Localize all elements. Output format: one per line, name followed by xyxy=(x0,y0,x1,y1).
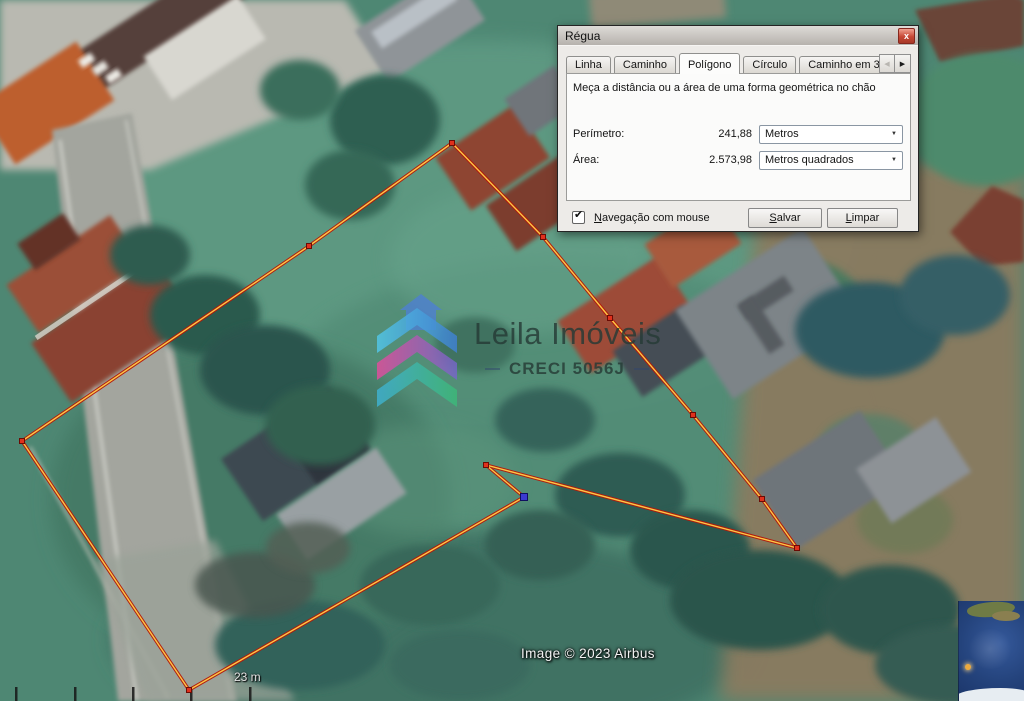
close-icon: x xyxy=(904,32,909,41)
area-unit-value: Metros quadrados xyxy=(765,154,854,166)
area-label: Área: xyxy=(573,154,599,166)
clear-button[interactable]: Limpar xyxy=(827,208,898,228)
close-button[interactable]: x xyxy=(898,28,915,44)
map-attribution: Image © 2023 Airbus xyxy=(521,646,655,661)
perimeter-value: 241,88 xyxy=(718,128,759,140)
tab-pane: Meça a distância ou a área de uma forma … xyxy=(566,73,911,201)
save-button[interactable]: Salvar xyxy=(748,208,822,228)
polygon-vertex[interactable] xyxy=(187,688,192,693)
tab-scroll-left-icon[interactable]: ◀ xyxy=(879,54,895,73)
mouse-nav-checkbox[interactable]: ✔ xyxy=(572,211,585,224)
overview-location-marker xyxy=(965,664,971,670)
dialog-titlebar[interactable]: Régua x xyxy=(558,26,918,45)
dialog-footer: ✔ Navegação com mouse Salvar Limpar xyxy=(566,208,911,230)
polygon-vertex[interactable] xyxy=(484,463,489,468)
scale-label: 23 m xyxy=(234,670,261,684)
area-value: 2.573,98 xyxy=(709,154,759,166)
tab-caminho[interactable]: Caminho xyxy=(614,56,676,73)
area-unit-select[interactable]: Metros quadrados ▼ xyxy=(759,151,903,170)
polygon-vertex[interactable] xyxy=(541,235,546,240)
tab-circulo[interactable]: Círculo xyxy=(743,56,796,73)
polygon-vertex[interactable] xyxy=(450,141,455,146)
overview-ice xyxy=(958,688,1024,701)
perimeter-unit-select[interactable]: Metros ▼ xyxy=(759,125,903,144)
polygon-vertex[interactable] xyxy=(20,439,25,444)
polygon-vertex[interactable] xyxy=(307,244,312,249)
polygon-vertex[interactable] xyxy=(760,497,765,502)
chevron-down-icon: ▼ xyxy=(891,157,897,163)
tab-linha[interactable]: Linha xyxy=(566,56,611,73)
polygon-vertex[interactable] xyxy=(795,546,800,551)
area-row: Área: 2.573,98 Metros quadrados ▼ xyxy=(573,150,903,170)
dialog-title: Régua xyxy=(565,29,600,43)
overview-clouds xyxy=(967,629,1013,669)
check-icon: ✔ xyxy=(574,210,583,221)
perimeter-unit-value: Metros xyxy=(765,128,799,140)
perimeter-label: Perímetro: xyxy=(573,128,624,140)
tab-scroll-right-icon[interactable]: ▶ xyxy=(895,54,911,73)
dialog-body: Linha Caminho Polígono Círculo Caminho e… xyxy=(558,45,918,231)
tab-poligono[interactable]: Polígono xyxy=(679,53,740,74)
tab-scroll-buttons: ◀ ▶ xyxy=(879,54,911,73)
chevron-down-icon: ▼ xyxy=(891,131,897,137)
overview-landmass xyxy=(992,611,1020,621)
ruler-dialog: Régua x Linha Caminho Polígono Círculo C… xyxy=(557,25,919,232)
tab-bar: Linha Caminho Polígono Círculo Caminho e… xyxy=(566,52,900,73)
google-earth-app: Leila Imóveis CRECI 5056J Image © 2023 A… xyxy=(0,0,1024,701)
polygon-vertex[interactable] xyxy=(691,413,696,418)
dialog-description: Meça a distância ou a área de uma forma … xyxy=(573,82,876,94)
polygon-vertex-active[interactable] xyxy=(521,494,528,501)
overview-map[interactable] xyxy=(958,601,1024,701)
mouse-nav-label[interactable]: Navegação com mouse xyxy=(594,212,710,224)
polygon-vertex[interactable] xyxy=(608,316,613,321)
perimeter-row: Perímetro: 241,88 Metros ▼ xyxy=(573,124,903,144)
